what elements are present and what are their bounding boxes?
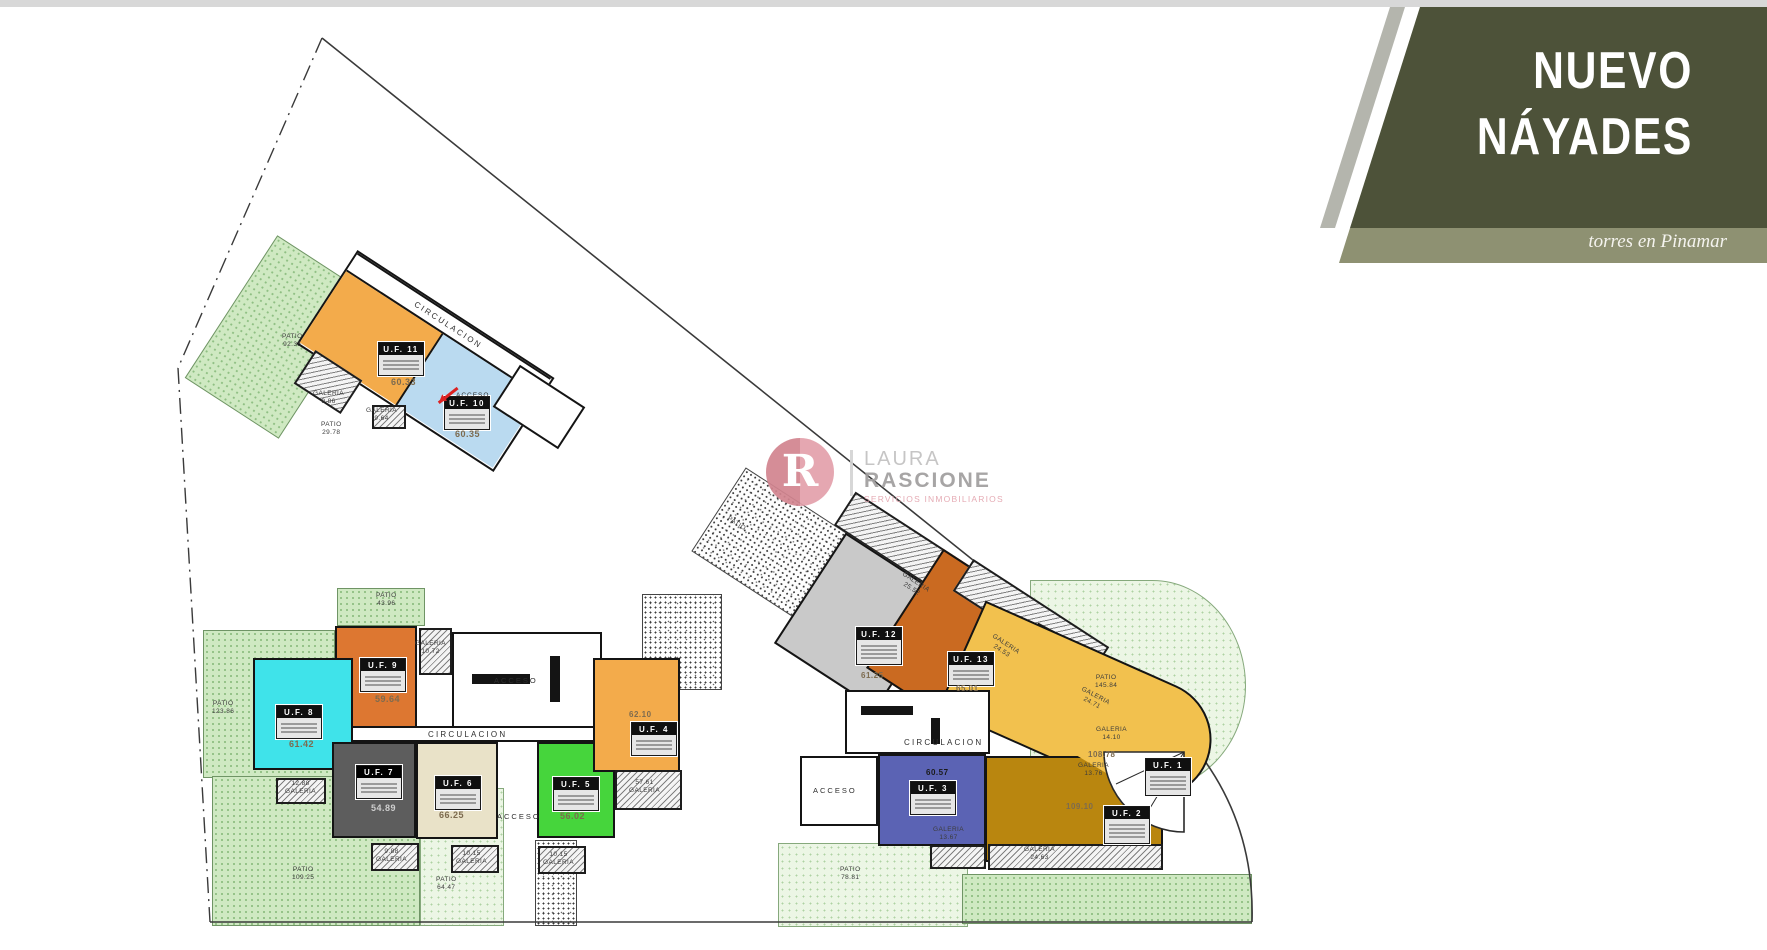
galeria-label-986: GALERIA9.86 <box>313 390 344 406</box>
watermark-name-line2: RASCIONE <box>864 469 991 493</box>
patio-label-12386: PATIO123.86 <box>212 700 234 716</box>
acceso-label-b-top: ACCESO <box>494 676 538 685</box>
unit-label-uf5: U.F. 5 <box>553 777 599 811</box>
unit-area-uf7: 54.89 <box>371 803 396 813</box>
banner-title-line1: NUEVO <box>1365 38 1693 104</box>
circulacion-label-c: CIRCULACION <box>904 738 983 747</box>
watermark-name-line1: LAURA <box>864 448 941 471</box>
unit-title-uf9: U.F. 9 <box>361 659 405 671</box>
galeria-label-1367: GALERIA13.67 <box>933 826 964 842</box>
banner-subtitle: torres en Pinamar <box>1427 231 1727 253</box>
unit-title-uf11: U.F. 11 <box>379 343 423 355</box>
unit-label-uf13: U.F. 13 <box>948 652 994 686</box>
unit-area-uf10: 60.35 <box>455 429 480 439</box>
unit-area-uf3: 60.57 <box>926 768 949 777</box>
unit-label-uf2: U.F. 2 <box>1104 806 1150 844</box>
unit-area-uf6: 66.25 <box>439 810 464 820</box>
unit-area-uf4: 62.10 <box>629 710 652 719</box>
unit-label-uf12: U.F. 12 <box>856 627 902 665</box>
galeria-label-988: 9.88GALERIA <box>376 848 407 864</box>
unit-title-uf8: U.F. 8 <box>277 706 321 718</box>
unit-title-uf13: U.F. 13 <box>949 653 993 665</box>
galeria-label-5761: 57.61GALERIA <box>629 779 660 795</box>
unit-label-uf7: U.F. 7 <box>356 765 402 799</box>
unit-title-uf3: U.F. 3 <box>911 782 955 794</box>
unit-area-uf9: 59.64 <box>375 694 400 704</box>
unit-area-uf11: 60.33 <box>391 377 416 387</box>
unit-area-uf12: 61.25 <box>861 671 884 680</box>
unit-title-uf2: U.F. 2 <box>1105 807 1149 819</box>
site-plan-canvas: CIRCULACION U.F. 11 60.33 U.F. 10 60.35 … <box>0 0 1767 950</box>
acceso-label-b-bottom: ACCESO <box>497 812 541 821</box>
unit-title-uf7: U.F. 7 <box>357 766 401 778</box>
acceso-label-a: ACCESO <box>456 392 489 399</box>
patio-label-14584: PATIO145.84 <box>1095 674 1117 690</box>
unit-title-uf12: U.F. 12 <box>857 628 901 640</box>
watermark-divider <box>850 450 853 496</box>
unit-label-uf6: U.F. 6 <box>435 776 481 810</box>
galeria-label-1410: GALERIA14.10 <box>1096 726 1127 742</box>
watermark-tagline: SERVICIOS INMOBILIARIOS <box>864 494 1004 504</box>
galeria-label-1015a: 10.15GALERIA <box>456 850 487 866</box>
unit-title-uf5: U.F. 5 <box>554 778 598 790</box>
galeria-strip-2463 <box>988 844 1163 870</box>
unit-title-uf1: U.F. 1 <box>1146 759 1190 771</box>
unit-label-uf11: U.F. 11 <box>378 342 424 376</box>
galeria-label-964: GALERIA9.64 <box>366 407 397 423</box>
watermark: R LAURA RASCIONE SERVICIOS INMOBILIARIOS <box>766 436 1026 516</box>
unit-label-uf3: U.F. 3 <box>910 781 956 815</box>
unit-title-uf6: U.F. 6 <box>436 777 480 789</box>
patio-label-10925: PATIO109.25 <box>292 866 314 882</box>
watermark-logo-circle: R <box>766 438 834 506</box>
galeria-label-1015b: 10.15GALERIA <box>543 851 574 867</box>
unit-label-uf8: U.F. 8 <box>276 705 322 739</box>
unit-area-uf2: 109.10 <box>1066 802 1093 811</box>
galeria-label-1288: 12.88GALERIA <box>285 780 316 796</box>
banner-title: NUEVO NÁYADES <box>1365 38 1693 170</box>
patio-label-4396: PATIO43.96 <box>376 592 397 608</box>
unit-title-uf4: U.F. 4 <box>632 723 676 735</box>
patio-label-92: PATIO92.35 <box>282 333 303 349</box>
galeria-box-1367 <box>930 845 986 869</box>
unit-label-uf1: U.F. 1 <box>1145 758 1191 796</box>
patio-label-6447: PATIO64.47 <box>436 876 457 892</box>
galeria-label-1072: GALERIA10.72 <box>415 640 446 656</box>
unit-label-uf4: U.F. 4 <box>631 722 677 756</box>
circulacion-label-b: CIRCULACION <box>428 730 507 739</box>
unit-area-uf5: 56.02 <box>560 811 585 821</box>
patio-label-7881: PATIO78.81 <box>840 866 861 882</box>
unit-label-uf9: U.F. 9 <box>360 658 406 692</box>
unit-label-uf10: U.F. 10 <box>444 396 490 430</box>
unit-area-uf8: 61.42 <box>289 739 314 749</box>
galeria-label-2463: GALERIA24.63 <box>1024 846 1055 862</box>
banner-title-line2: NÁYADES <box>1365 104 1693 170</box>
watermark-monogram: R <box>782 450 819 494</box>
acceso-label-c: ACCESO <box>813 786 857 795</box>
patio-label-2978: PATIO29.78 <box>321 421 342 437</box>
unit-area-uf13: 65.01 <box>956 684 979 693</box>
unit-area-uf1: 108.78 <box>1088 750 1115 759</box>
galeria-label-1376: GALERIA13.76 <box>1078 762 1109 778</box>
